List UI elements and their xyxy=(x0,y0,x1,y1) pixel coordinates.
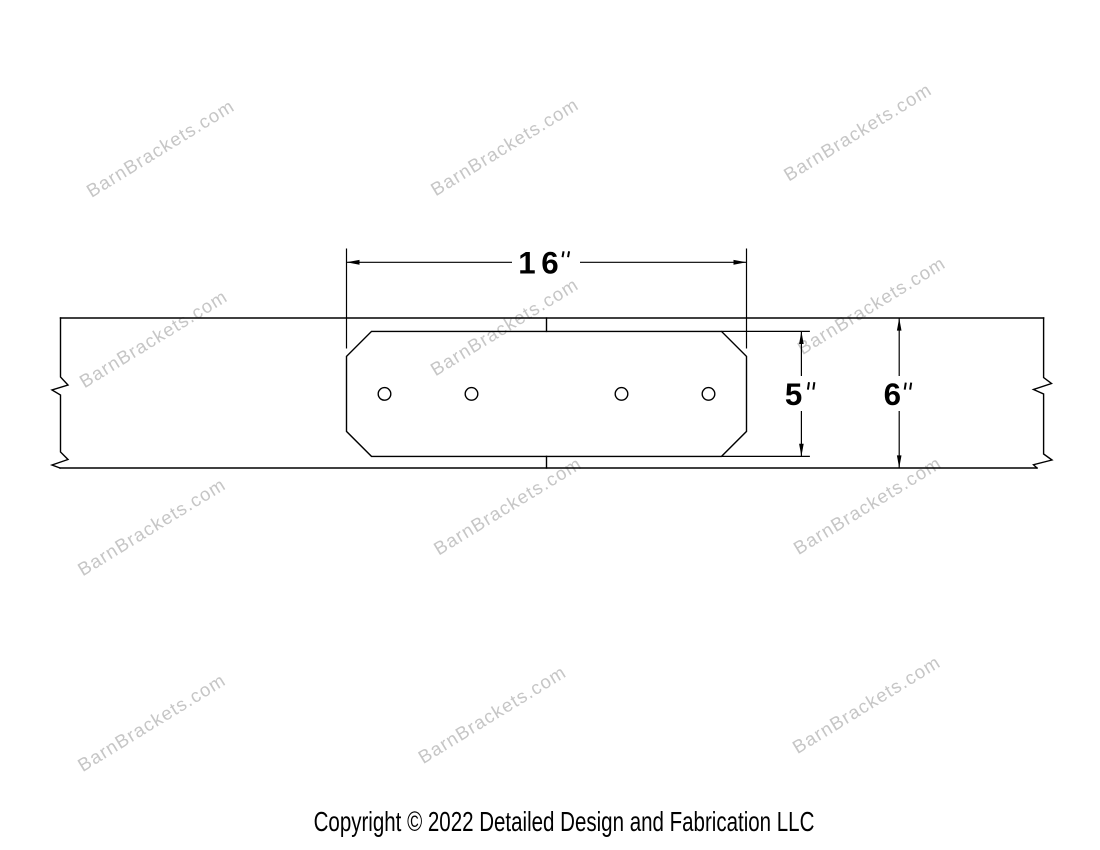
svg-text:1: 1 xyxy=(518,246,535,281)
svg-text:6: 6 xyxy=(541,246,558,281)
svg-text:Copyright © 2022 Detailed Desi: Copyright © 2022 Detailed Design and Fab… xyxy=(314,807,815,838)
svg-text:6: 6 xyxy=(884,377,901,412)
svg-text:5: 5 xyxy=(785,377,802,412)
